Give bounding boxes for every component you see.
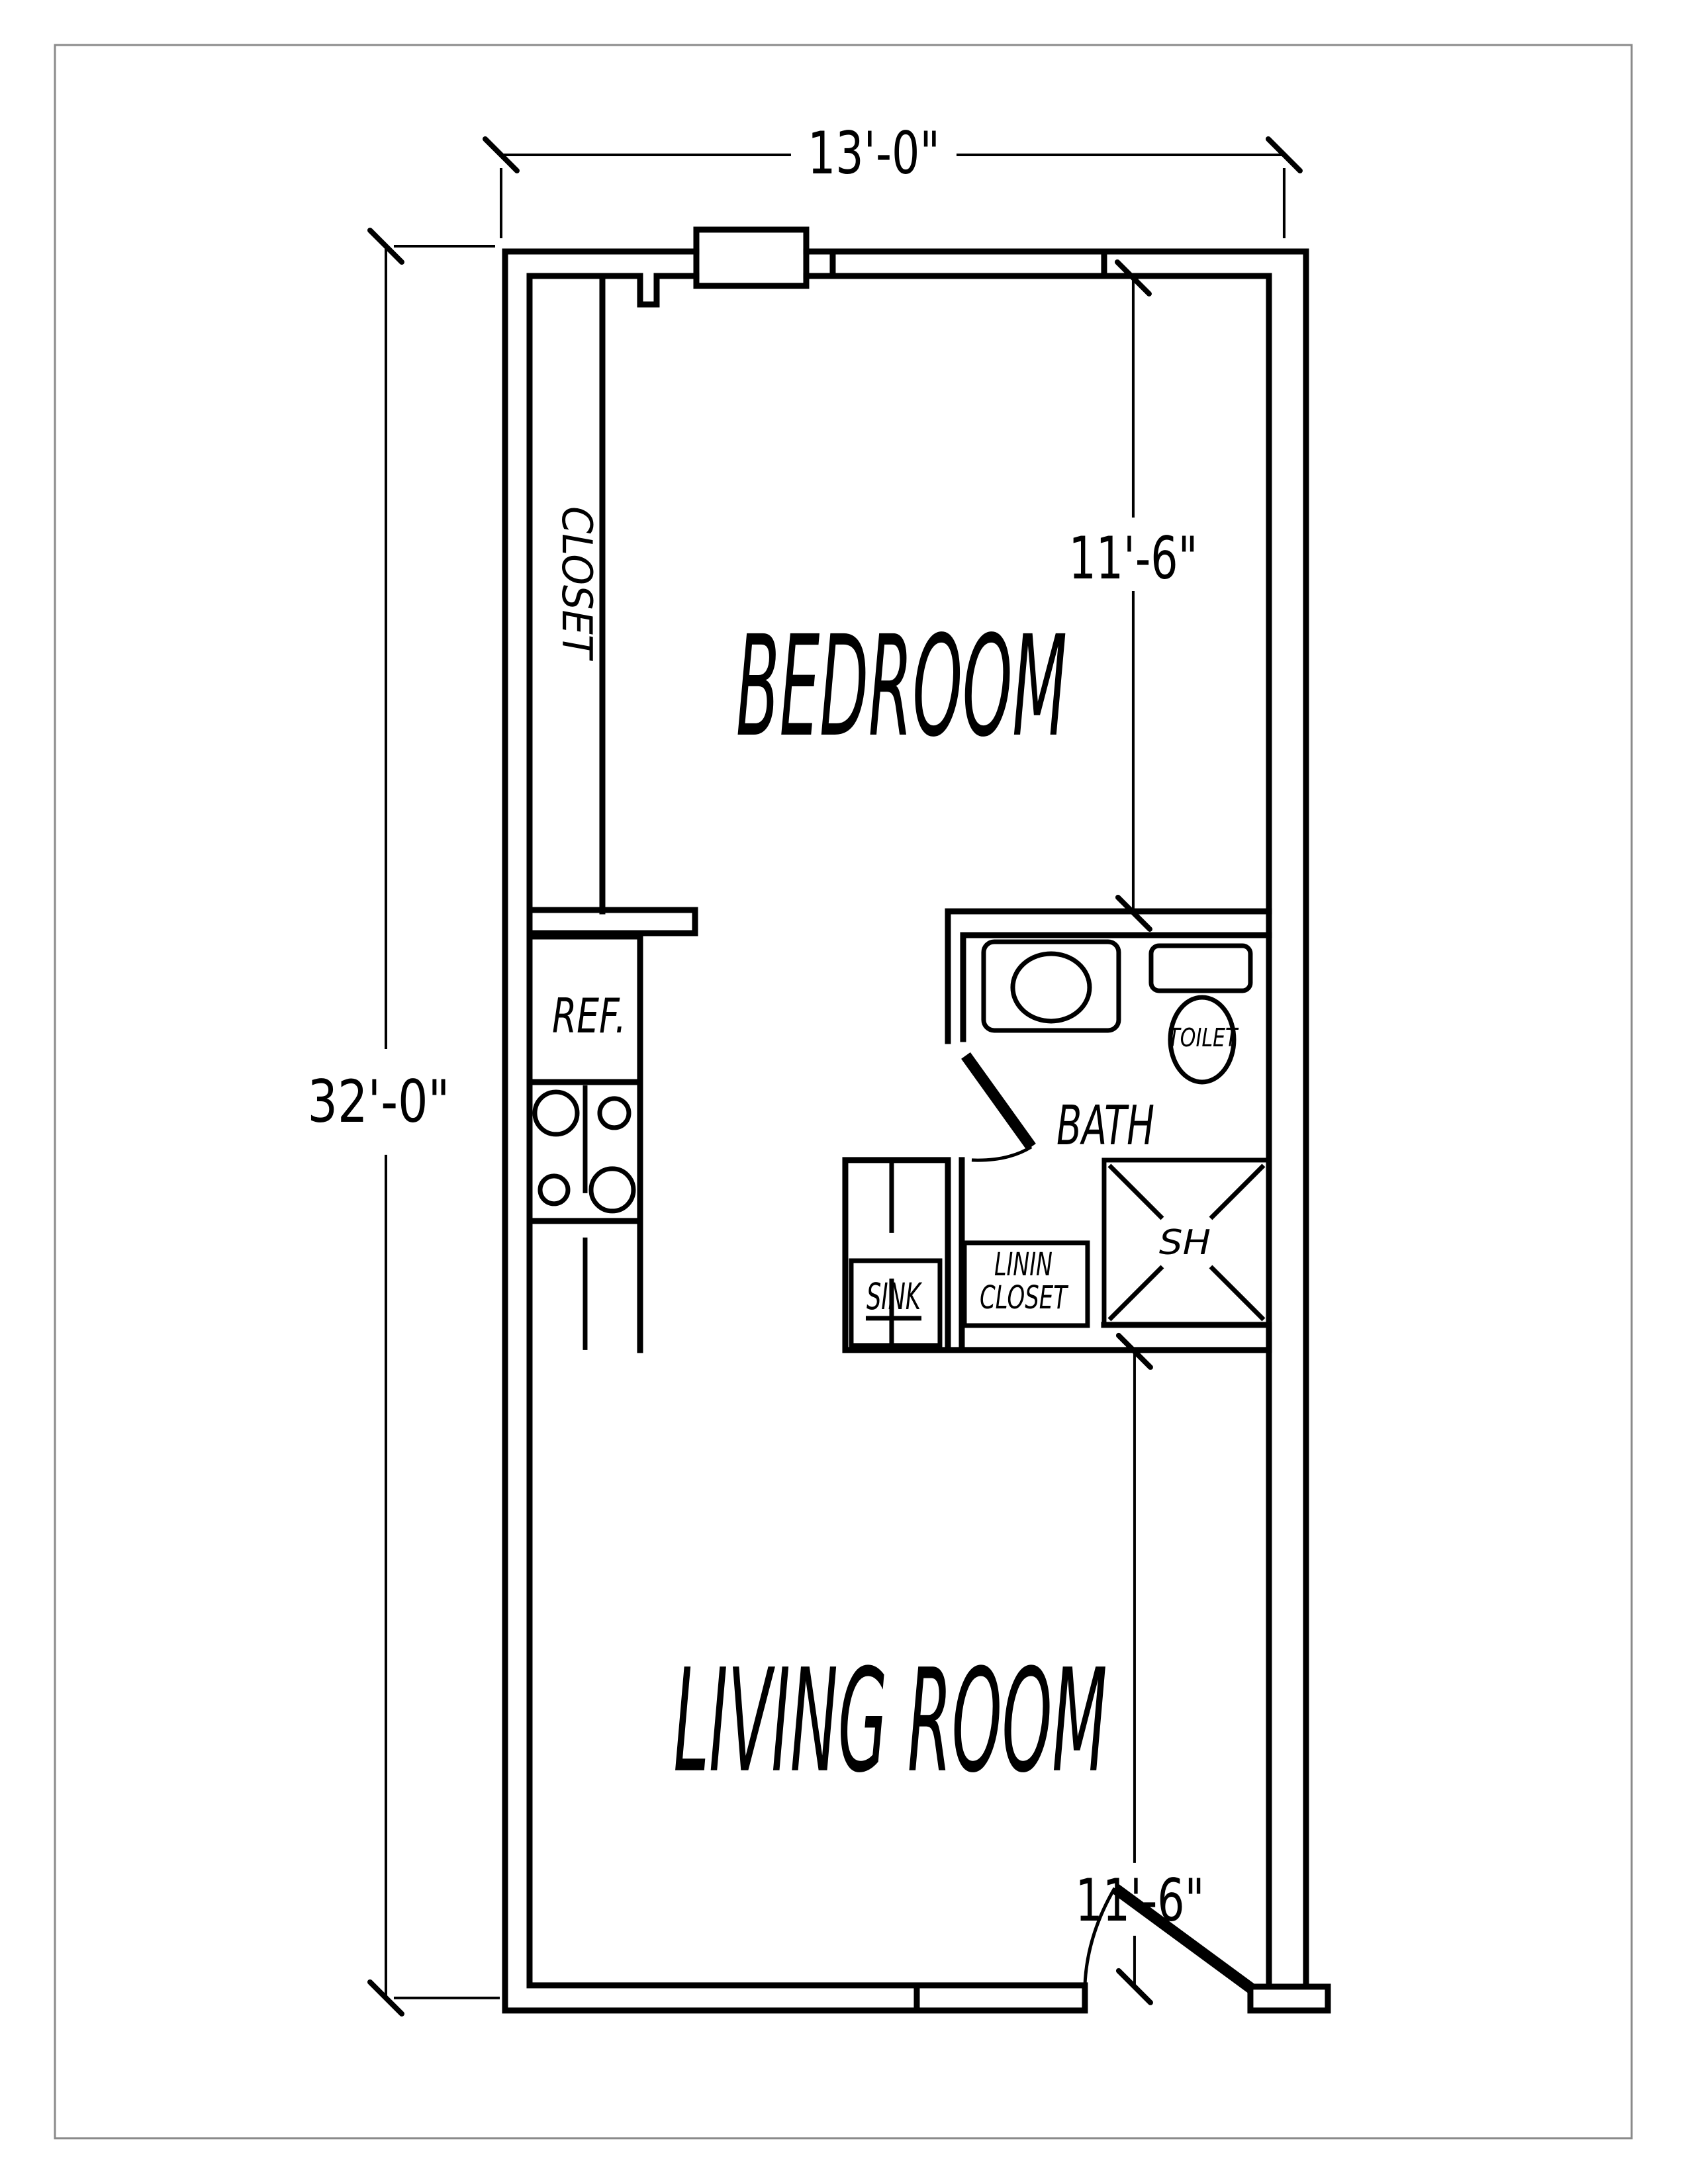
doors (966, 1056, 1252, 1989)
bedroom-width-dimension: 11'-6" (1068, 524, 1197, 592)
interior-walls (531, 276, 1269, 1350)
living-room-width-dimension: 11'-6" (1075, 1866, 1204, 1934)
closet-label: CLOSET (553, 506, 601, 661)
bath-door-swing (972, 1147, 1031, 1160)
dimension-bedroom: 11'-6" (1068, 262, 1197, 929)
dimension-top: 13'-0" (485, 119, 1300, 238)
stove-burner (591, 1169, 633, 1211)
sink-label: SINK (867, 1275, 923, 1318)
stove-burner (535, 1092, 577, 1134)
page-border (55, 45, 1632, 2138)
living-room-label: LIVING ROOM (674, 1638, 1107, 1804)
toilet-tank (1151, 946, 1250, 991)
stove-burner (600, 1099, 629, 1128)
stove-burner (540, 1176, 568, 1204)
linen-closet-label-line2: CLOSET (980, 1279, 1069, 1316)
kitchen: REF. (535, 988, 633, 1350)
floor-plan-page: REF. TOILET SH LININ CLOSET SINK 13'-0" (0, 0, 1688, 2184)
overall-height-dimension: 32'-0" (308, 1068, 450, 1136)
dimension-left: 32'-0" (308, 230, 500, 2014)
bath-door-leaf (966, 1056, 1031, 1147)
linen-closet-label-line1: LININ (994, 1246, 1053, 1283)
floor-plan-drawing: REF. TOILET SH LININ CLOSET SINK 13'-0" (0, 0, 1688, 2184)
overall-width-dimension: 13'-0" (808, 119, 940, 187)
toilet-label: TOILET (1168, 1023, 1239, 1052)
refrigerator-label: REF. (552, 988, 626, 1044)
bath-label: BATH (1056, 1095, 1154, 1158)
through-wall-unit (696, 230, 806, 286)
shower-label: SH (1159, 1223, 1211, 1263)
vanity-basin (1013, 954, 1090, 1021)
sink-cabinet: SINK (851, 1160, 940, 1349)
bedroom-label: BEDROOM (736, 606, 1067, 768)
